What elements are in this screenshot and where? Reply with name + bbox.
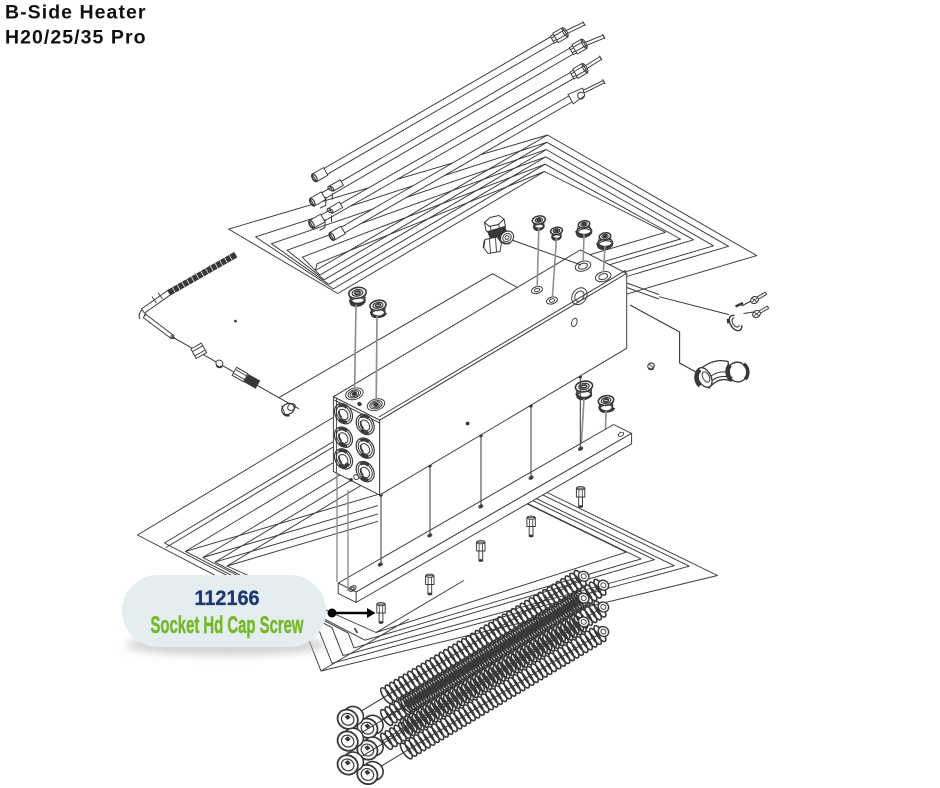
svg-text:B-Side Heater: B-Side Heater [5,2,147,24]
svg-text:112166: 112166 [195,586,260,610]
svg-text:Socket Hd Cap Screw: Socket Hd Cap Screw [151,612,304,639]
svg-text:H20/25/35 Pro: H20/25/35 Pro [5,27,147,49]
